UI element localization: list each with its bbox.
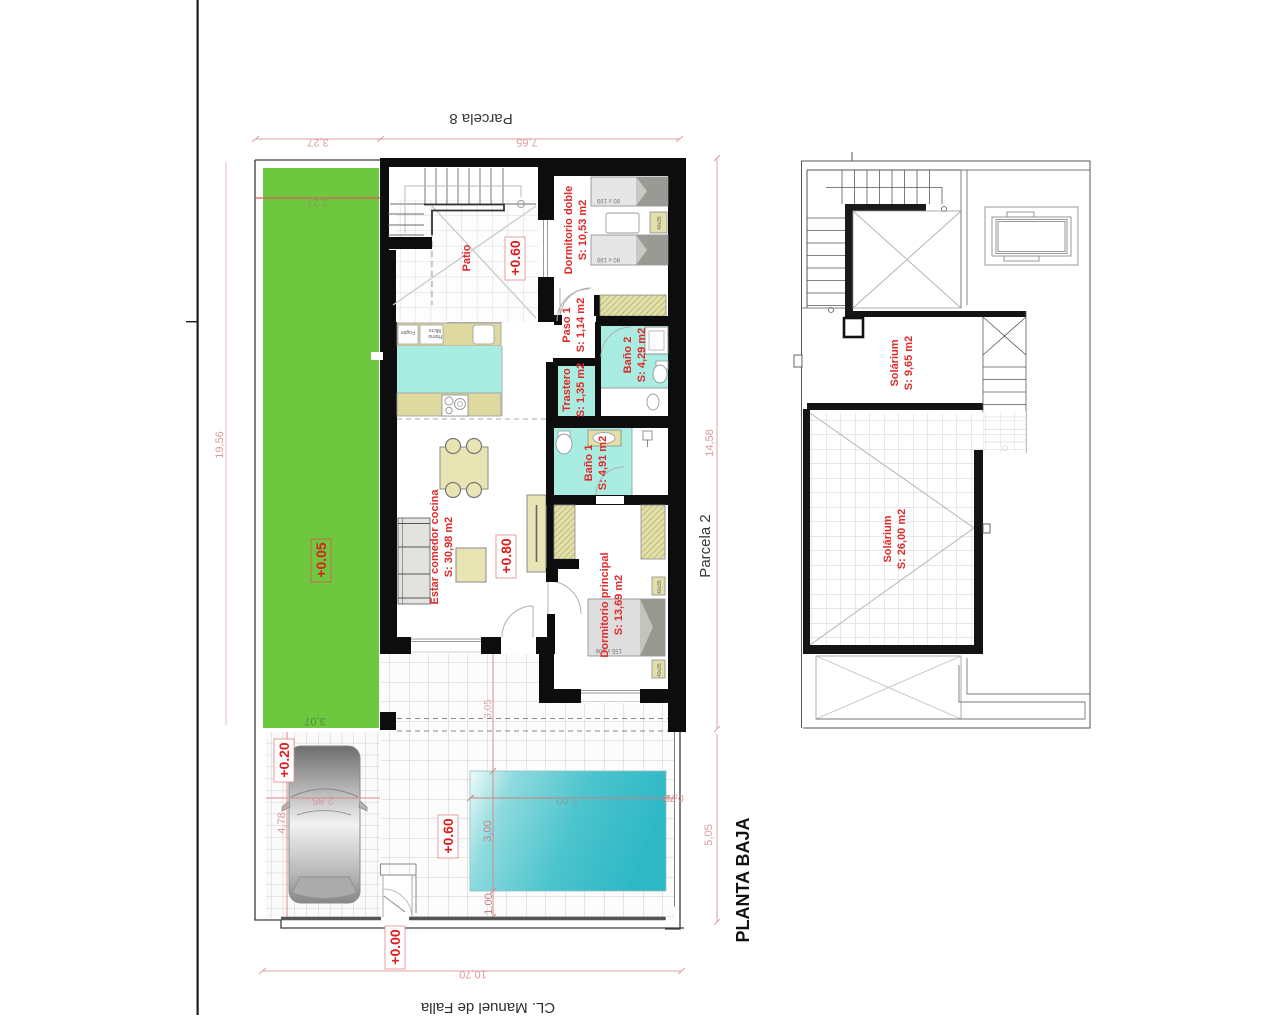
svg-text:19,56: 19,56 [214,431,226,459]
svg-text:80 x 199: 80 x 199 [596,256,620,262]
svg-text:S: 30,98 m2: S: 30,98 m2 [443,517,455,578]
svg-text:3,00: 3,00 [482,820,494,841]
svg-text:3,27: 3,27 [307,136,328,148]
svg-text:Micro: Micro [429,327,441,333]
svg-text:Parcela 2: Parcela 2 [697,514,714,577]
svg-text:CL. Manuel de Falla: CL. Manuel de Falla [420,999,555,1016]
svg-text:Parcela 8: Parcela 8 [449,110,512,127]
svg-text:Solárium: Solárium [889,339,901,386]
svg-text:40x35: 40x35 [657,663,663,677]
svg-text:3,05: 3,05 [483,699,494,719]
svg-text:Dormitorio principal: Dormitorio principal [599,552,611,657]
svg-text:+0.00: +0.00 [387,929,403,965]
svg-text:S: 26,00 m2: S: 26,00 m2 [896,509,908,570]
svg-text:+0.60: +0.60 [507,240,523,276]
svg-text:2,85: 2,85 [312,794,333,806]
svg-text:Fogón: Fogón [401,329,415,335]
svg-text:Solárium: Solárium [882,515,894,562]
svg-text:S: 4,91 m2: S: 4,91 m2 [597,436,609,490]
svg-text:5,05: 5,05 [703,824,715,845]
svg-text:Estar comedor cocina: Estar comedor cocina [429,489,441,605]
svg-text:+0.20: +0.20 [276,742,292,778]
svg-text:+0.60: +0.60 [440,818,456,854]
svg-text:5,00: 5,00 [556,794,577,806]
svg-text:S: 10,53 m2: S: 10,53 m2 [577,200,589,261]
svg-text:40x35: 40x35 [657,216,663,230]
svg-text:4,78: 4,78 [276,812,288,833]
svg-text:S: 1,14 m2: S: 1,14 m2 [575,298,587,352]
svg-text:Baño 1: Baño 1 [583,445,595,482]
svg-text:Patio: Patio [461,244,473,271]
svg-text:S: 1,35 m2: S: 1,35 m2 [575,363,587,417]
svg-text:40x35: 40x35 [657,580,663,594]
svg-text:Dormitorio doble: Dormitorio doble [563,186,575,275]
svg-text:0,70: 0,70 [664,792,684,803]
svg-text:10,70: 10,70 [459,968,487,980]
svg-text:PLANTA BAJA: PLANTA BAJA [733,818,753,943]
svg-text:3,07: 3,07 [304,715,325,727]
svg-text:Horno: Horno [428,333,442,339]
svg-text:+0.80: +0.80 [498,538,514,574]
svg-text:1,00: 1,00 [483,893,495,914]
svg-text:S: 13,69 m2: S: 13,69 m2 [613,575,625,636]
svg-text:7,65: 7,65 [516,136,537,148]
svg-text:14,58: 14,58 [704,429,716,457]
svg-text:3,27: 3,27 [307,196,328,208]
svg-text:80 x 199: 80 x 199 [596,197,620,203]
svg-text:S: 9,65 m2: S: 9,65 m2 [903,336,915,390]
svg-text:S: 4,29 m2: S: 4,29 m2 [636,328,648,382]
svg-text:Paso 1: Paso 1 [561,307,573,342]
svg-text:Baño 2: Baño 2 [622,337,634,374]
svg-text:Trastero: Trastero [561,368,573,412]
svg-text:+0.05: +0.05 [313,542,329,578]
